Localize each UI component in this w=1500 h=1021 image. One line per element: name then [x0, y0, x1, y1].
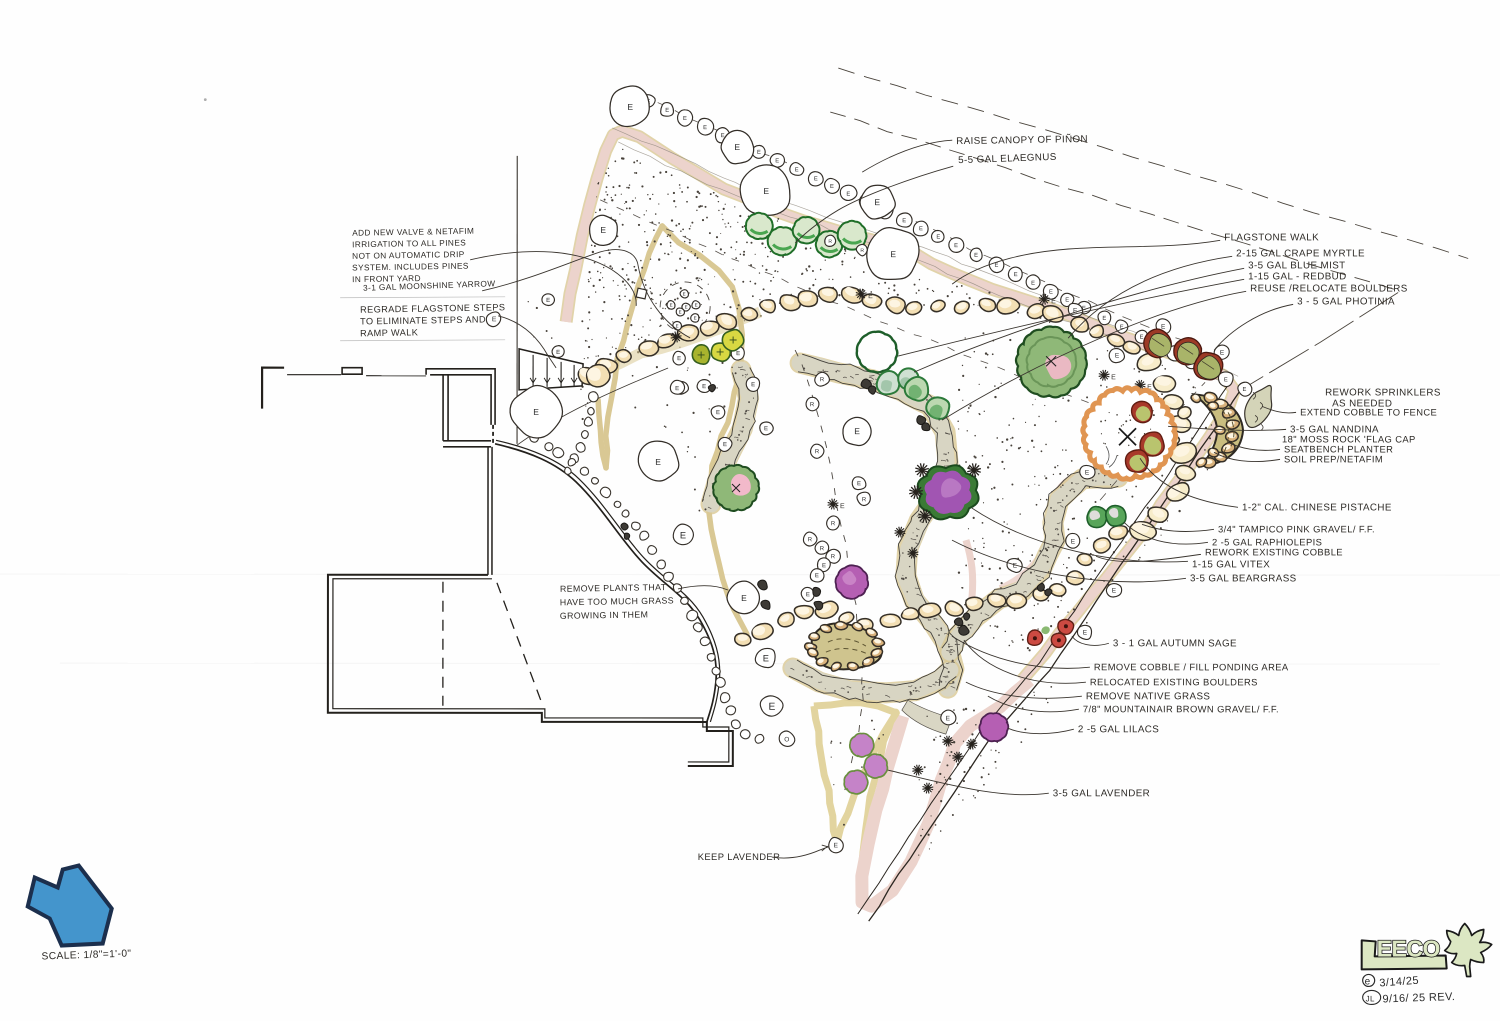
svg-text:E: E	[675, 385, 679, 392]
svg-text:R: R	[828, 239, 832, 245]
svg-text:E: E	[757, 150, 761, 156]
svg-text:GROWING IN THEM: GROWING IN THEM	[560, 609, 649, 620]
svg-text:E: E	[954, 243, 958, 249]
svg-text:E: E	[919, 226, 923, 232]
svg-text:HAVE TOO MUCH GRASS: HAVE TOO MUCH GRASS	[560, 595, 674, 607]
svg-text:R: R	[820, 545, 825, 552]
svg-text:E: E	[546, 297, 550, 304]
svg-text:R: R	[831, 520, 836, 527]
svg-text:E: E	[1014, 272, 1018, 278]
svg-text:E: E	[741, 593, 747, 603]
svg-text:E: E	[665, 108, 669, 114]
svg-text:E: E	[1111, 374, 1116, 381]
svg-text:E: E	[556, 349, 560, 356]
svg-text:E: E	[627, 102, 633, 112]
svg-text:EECO: EECO	[1377, 935, 1440, 961]
svg-text:R: R	[862, 496, 867, 503]
svg-text:E: E	[723, 441, 727, 448]
svg-text:3-5 GAL LAVENDER: 3-5 GAL LAVENDER	[1053, 788, 1150, 799]
svg-text:E: E	[936, 235, 940, 241]
svg-text:E: E	[1220, 350, 1225, 357]
svg-text:SOIL PREP/NETAFIM: SOIL PREP/NETAFIM	[1284, 453, 1383, 464]
svg-text:E: E	[846, 192, 850, 198]
svg-text:E: E	[814, 176, 818, 182]
svg-text:E: E	[1140, 335, 1144, 341]
svg-text:E: E	[857, 480, 861, 487]
svg-text:E: E	[1115, 353, 1120, 360]
svg-text:1-2" CAL. CHINESE PISTACHE: 1-2" CAL. CHINESE PISTACHE	[1242, 502, 1392, 513]
svg-text:E: E	[890, 249, 896, 259]
svg-text:E: E	[902, 218, 906, 224]
svg-text:IRRIGATION TO ALL PINES: IRRIGATION TO ALL PINES	[352, 237, 466, 249]
svg-text:REMOVE NATIVE GRASS: REMOVE NATIVE GRASS	[1086, 691, 1211, 702]
svg-text:E: E	[716, 409, 720, 416]
svg-text:ADD NEW VALVE & NETAFIM: ADD NEW VALVE & NETAFIM	[352, 226, 474, 238]
svg-text:E: E	[679, 310, 682, 315]
svg-text:E: E	[1071, 539, 1076, 546]
svg-text:3 - 5 GAL PHOTINIA: 3 - 5 GAL PHOTINIA	[1297, 296, 1395, 307]
svg-text:E: E	[751, 381, 755, 388]
svg-text:E: E	[683, 292, 686, 297]
svg-text:E: E	[670, 303, 673, 308]
svg-text:REMOVE PLANTS THAT: REMOVE PLANTS THAT	[560, 582, 667, 594]
svg-text:E: E	[854, 426, 860, 436]
svg-text:REUSE /RELOCATE BOULDERS: REUSE /RELOCATE BOULDERS	[1250, 283, 1408, 294]
svg-text:JL: JL	[1366, 994, 1375, 1003]
svg-text:3 - 1 GAL AUTUMN SAGE: 3 - 1 GAL AUTUMN SAGE	[1113, 638, 1237, 649]
svg-text:E: E	[676, 324, 679, 329]
svg-text:E: E	[830, 184, 834, 190]
svg-text:E: E	[683, 116, 687, 122]
svg-text:E: E	[1065, 298, 1069, 304]
svg-text:E: E	[874, 197, 880, 207]
svg-text:E: E	[736, 350, 740, 357]
svg-text:REWORK EXISTING COBBLE: REWORK EXISTING COBBLE	[1205, 546, 1343, 557]
svg-text:R: R	[808, 536, 813, 543]
svg-text:E: E	[840, 503, 845, 510]
svg-text:E: E	[677, 355, 681, 362]
svg-text:E: E	[685, 305, 688, 310]
svg-text:E: E	[1085, 470, 1090, 477]
svg-text:e: e	[1365, 976, 1371, 987]
svg-text:R: R	[860, 248, 864, 254]
svg-text:E: E	[806, 591, 810, 598]
svg-text:E: E	[600, 225, 606, 235]
svg-text:FLAGSTONE WALK: FLAGSTONE WALK	[1224, 232, 1319, 243]
svg-text:3-5 GAL BEARGRASS: 3-5 GAL BEARGRASS	[1190, 573, 1297, 584]
svg-text:E: E	[822, 562, 826, 569]
svg-text:E: E	[768, 702, 775, 713]
svg-text:EXTEND COBBLE TO FENCE: EXTEND COBBLE TO FENCE	[1300, 406, 1437, 417]
svg-text:E: E	[655, 457, 661, 467]
svg-text:REMOVE COBBLE / FILL PONDING A: REMOVE COBBLE / FILL PONDING AREA	[1094, 661, 1289, 672]
svg-text:E: E	[764, 425, 768, 432]
svg-text:RELOCATED EXISTING BOULDERS: RELOCATED EXISTING BOULDERS	[1090, 676, 1258, 687]
svg-text:REWORK SPRINKLERS: REWORK SPRINKLERS	[1325, 387, 1441, 398]
svg-text:E: E	[1112, 588, 1117, 595]
svg-text:E: E	[1102, 316, 1106, 322]
svg-text:3-5 GAL BLUE MIST: 3-5 GAL BLUE MIST	[1248, 260, 1345, 271]
svg-text:1-15 GAL VITEX: 1-15 GAL VITEX	[1192, 559, 1270, 570]
svg-text:E: E	[868, 293, 873, 300]
svg-text:E: E	[680, 530, 686, 540]
svg-text:R: R	[810, 401, 815, 408]
svg-text:E: E	[1083, 630, 1088, 637]
svg-text:E: E	[703, 125, 707, 131]
svg-text:R: R	[831, 553, 836, 560]
svg-text:2 -5 GAL LILACS: 2 -5 GAL LILACS	[1078, 724, 1159, 735]
svg-text:RAMP WALK: RAMP WALK	[360, 327, 419, 338]
svg-text:E: E	[946, 715, 951, 722]
svg-text:R: R	[815, 448, 820, 455]
svg-text:E: E	[763, 186, 769, 196]
svg-text:NOT ON AUTOMATIC DRIP: NOT ON AUTOMATIC DRIP	[352, 249, 465, 261]
svg-text:R: R	[820, 376, 825, 383]
svg-text:E: E	[795, 167, 799, 173]
svg-text:E: E	[815, 572, 819, 579]
svg-text:E: E	[763, 653, 769, 663]
svg-text:E: E	[1242, 387, 1246, 393]
svg-text:E: E	[775, 158, 779, 164]
svg-text:TO ELIMINATE STEPS AND: TO ELIMINATE STEPS AND	[360, 314, 486, 326]
svg-text:E: E	[834, 842, 839, 849]
svg-text:2-15 GAL CRAPE MYRTLE: 2-15 GAL CRAPE MYRTLE	[1236, 248, 1365, 259]
svg-text:E: E	[533, 407, 539, 417]
svg-text:E: E	[1049, 290, 1053, 296]
svg-text:E: E	[995, 263, 999, 269]
svg-text:SYSTEM. INCLUDES PINES: SYSTEM. INCLUDES PINES	[352, 261, 469, 273]
svg-text:E: E	[1013, 562, 1018, 569]
svg-text:E: E	[1051, 298, 1056, 305]
svg-text:E: E	[694, 316, 697, 321]
svg-text:O: O	[784, 736, 789, 743]
svg-text:1-15 GAL - REDBUD: 1-15 GAL - REDBUD	[1248, 271, 1346, 282]
svg-text:9/16/ 25 REV.: 9/16/ 25 REV.	[1382, 991, 1455, 1005]
svg-text:KEEP LAVENDER: KEEP LAVENDER	[698, 851, 781, 862]
svg-text:3/4" TAMPICO PINK GRAVEL/ F.F.: 3/4" TAMPICO PINK GRAVEL/ F.F.	[1218, 523, 1375, 534]
svg-text:E: E	[702, 383, 706, 390]
svg-text:E: E	[974, 253, 978, 259]
svg-text:RAISE CANOPY OF PIÑON: RAISE CANOPY OF PIÑON	[956, 133, 1088, 147]
svg-text:E: E	[1224, 377, 1228, 383]
svg-text:E: E	[492, 316, 497, 323]
svg-text:E: E	[734, 142, 740, 152]
svg-text:E: E	[1031, 281, 1035, 287]
svg-text:7/8" MOUNTAINAIR BROWN GRAVEL/: 7/8" MOUNTAINAIR BROWN GRAVEL/ F.F.	[1083, 703, 1279, 714]
svg-text:E: E	[695, 303, 698, 308]
